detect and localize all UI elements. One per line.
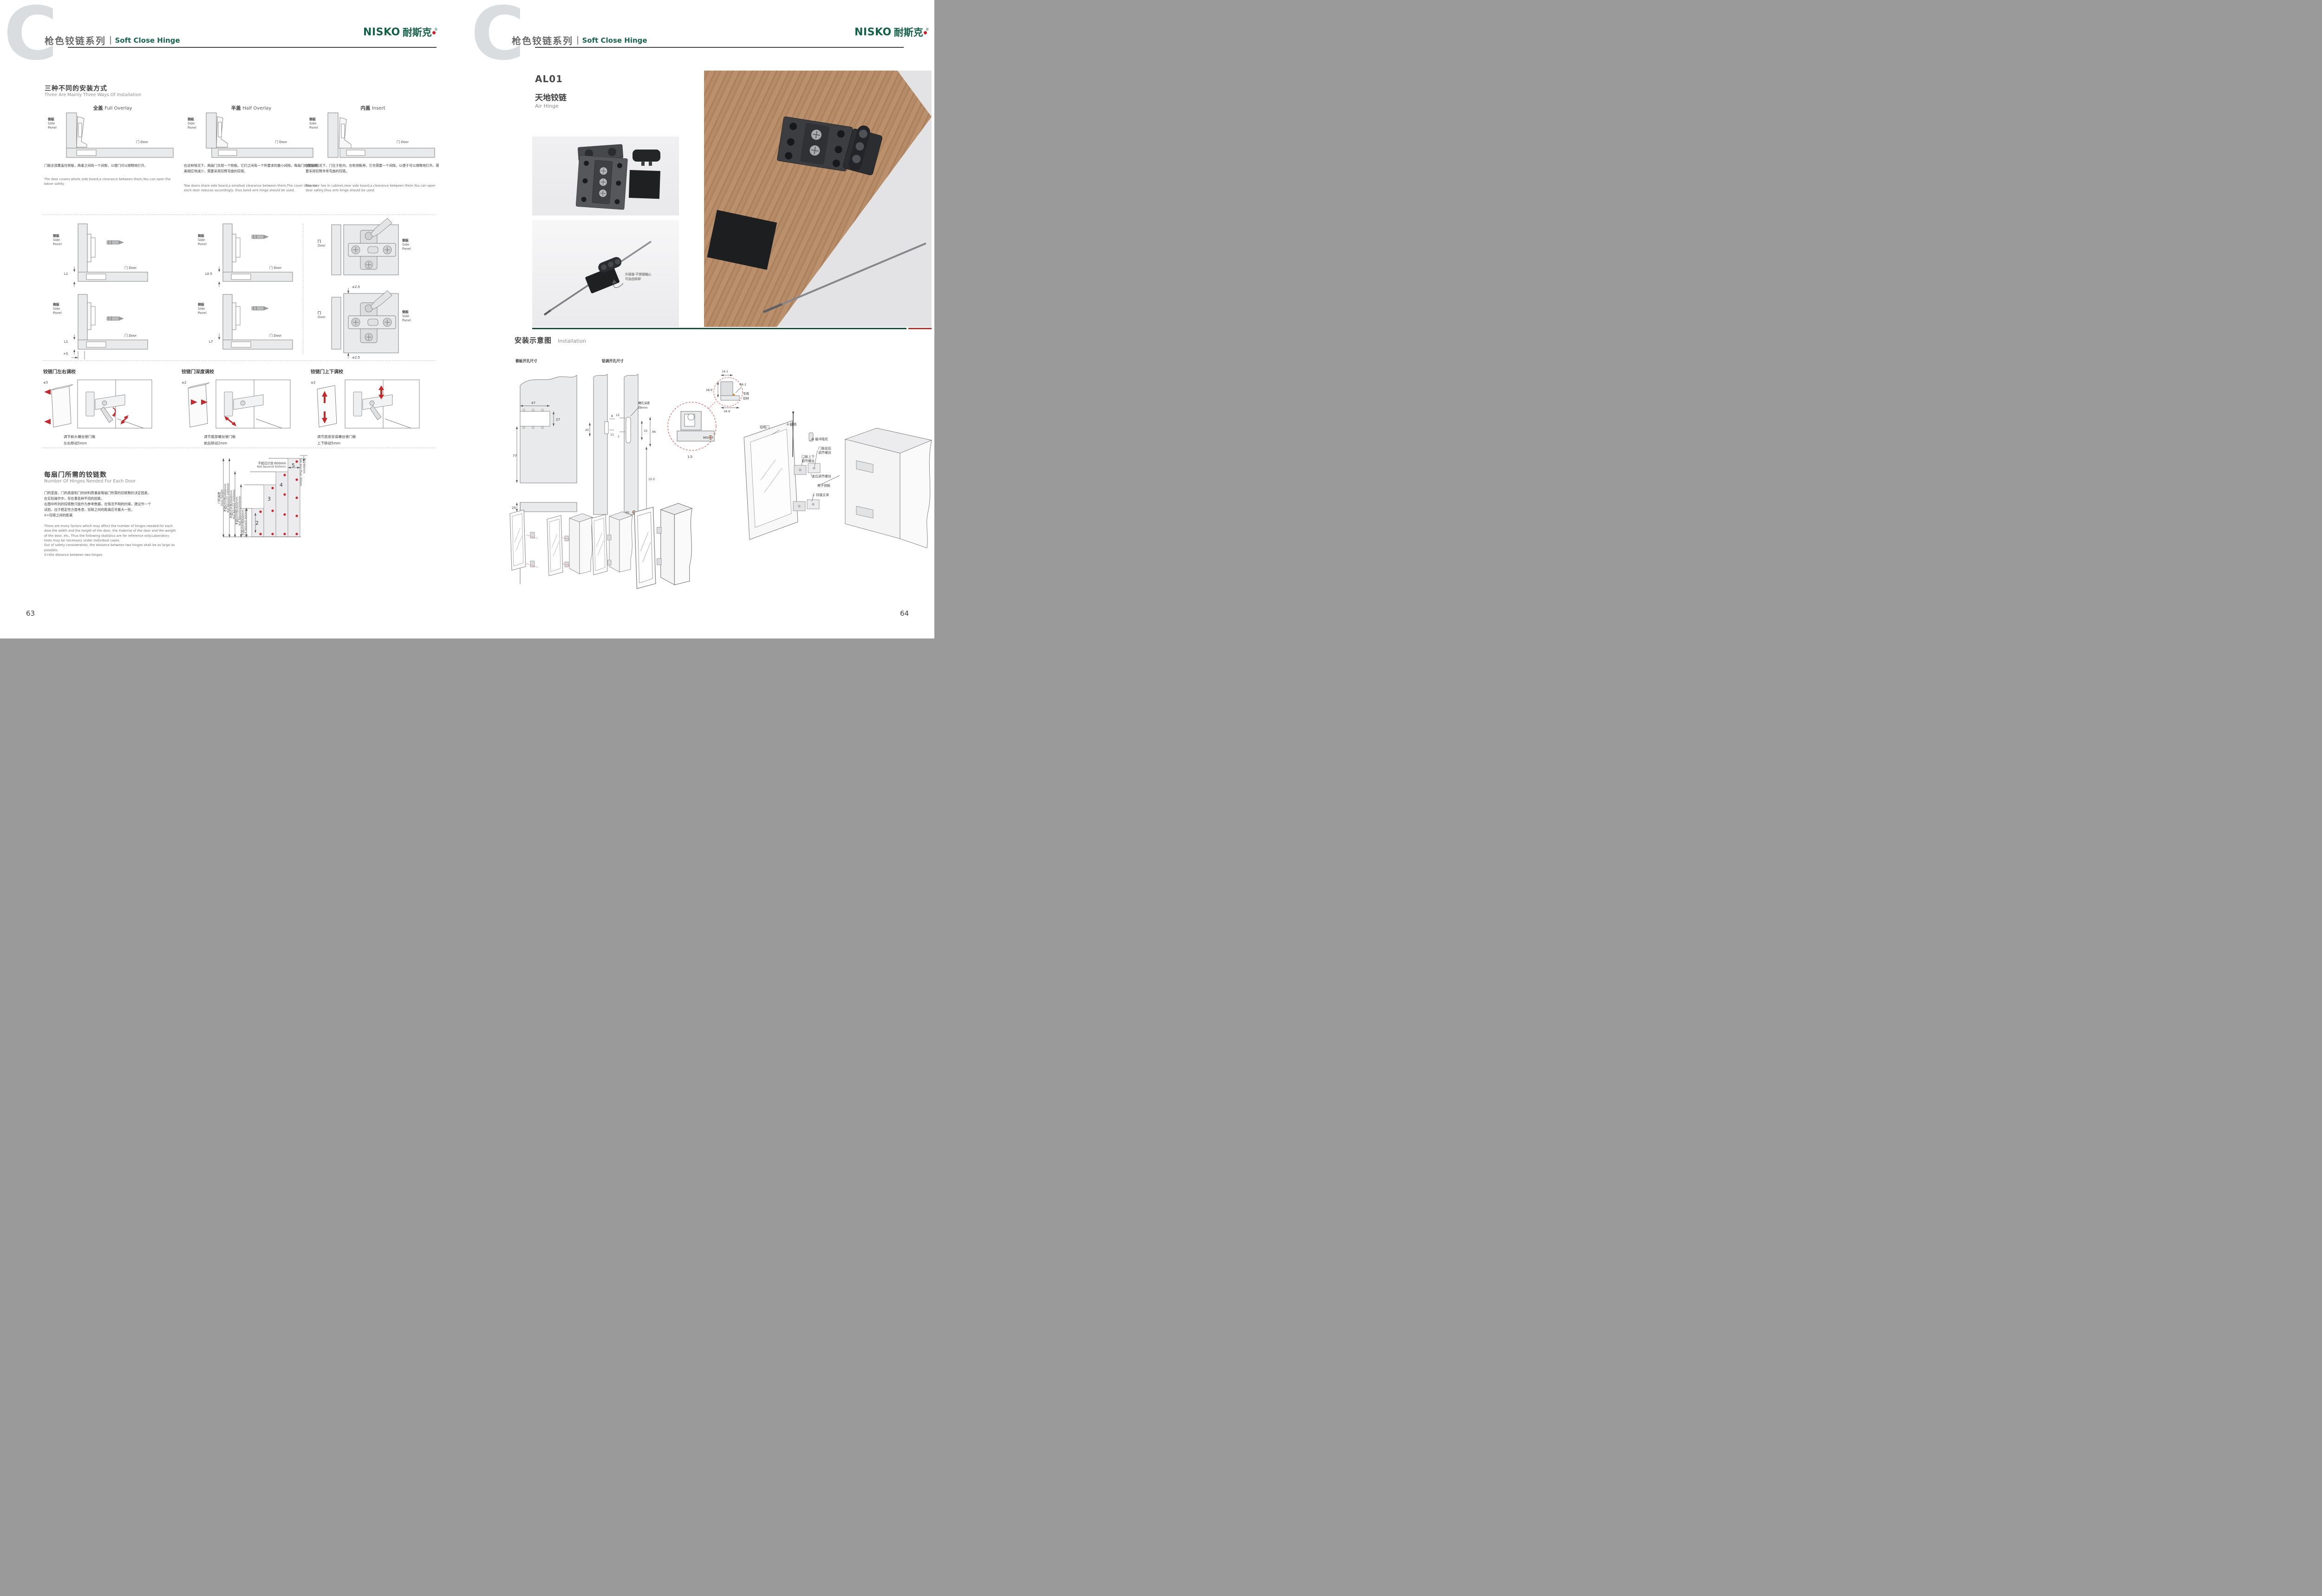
svg-text:1: 1 (618, 435, 620, 438)
door-label: 门 Door (269, 333, 281, 338)
adjust-title: 铰链门上下调校 (311, 368, 441, 375)
door-label: 门 Door (124, 333, 137, 338)
air-hinge-on-board (777, 112, 885, 176)
tolerance-top: ±2.5 (352, 285, 360, 289)
label-frame-door: 铝框门 (760, 425, 770, 430)
svg-text:槽孔深度: 槽孔深度 (638, 401, 650, 405)
clearance-diagram-L1: 侧板SidePanel 门 Door L1 (50, 222, 162, 291)
svg-text:M5: M5 (703, 436, 708, 440)
product-name-en: Air Hinge (535, 103, 559, 109)
installation-title: 安装示意图 Installation (515, 335, 586, 345)
clearance-diagram-L0.5: 侧板SidePanel 门 Door L0.5 (195, 222, 307, 291)
clearance-drawing (50, 222, 162, 291)
plate-diagram-2: 门Door 侧板SidePanel ±2.5 ±2.5 (318, 287, 434, 361)
bar-count-2: 2 (255, 520, 259, 526)
alu-drill-drawing: 8 20 11 12 1 33 46 15.5 M5 槽孔深度 18mm (586, 367, 660, 522)
dim-label: L7 (209, 340, 213, 344)
alu-drill-title: 铝调开孔尺寸 (602, 358, 624, 364)
svg-text:15.5: 15.5 (648, 478, 655, 481)
adjust-caption: 调节尾部螺丝使门板 前后移动2mm (204, 434, 235, 446)
product-code: AL01 (535, 73, 563, 85)
side-panel-label: 侧板SidePanel (198, 234, 207, 247)
label-ud-screw: 门板上下 调节螺丝 (802, 455, 815, 463)
logo-wordmark: NISKO (854, 27, 892, 38)
series-title-en: Soft Close Hinge (115, 36, 180, 45)
bar-count-4: 4 (280, 482, 283, 488)
photo-parts-drawing (532, 137, 679, 215)
row-label-900: 不超过计划900mmNot bevond 900mm (241, 508, 248, 537)
adjust-depth: 铰链门深度调校 ±2 调节尾部螺丝使门板 前后移动2mm (182, 368, 312, 375)
hinge-count-desc-cn: 门的宽度，门的高度和门的材料质量是每扇门所需的铰链数的决定因素。 在实际操作中，… (44, 490, 197, 518)
method-desc-en: Tow doors share side board,a smallest cl… (184, 183, 318, 193)
header-rule-right (535, 47, 904, 48)
svg-text:47: 47 (531, 401, 535, 405)
clearance-diagram-L7: 侧板SidePanel 门 Door L7 (195, 293, 307, 361)
product-photo-parts (532, 137, 679, 215)
side-panel-label: 侧板SidePanel (402, 239, 411, 251)
clearance-diagram-L1-plus5: 侧板SidePanel 门 Door L1 +5 (50, 293, 162, 361)
method-desc-cn: 门板全部覆盖住侧板，两者之间有一个间隙，以便门可以顺畅地打开。 (44, 163, 180, 169)
series-title-cn: 枪色铰链系列 (512, 33, 573, 47)
method-half-overlay: 半盖 Half Overlay 侧板SidePanel 门 Door 在这种情况… (184, 104, 319, 111)
catalog-spread: C 枪色铰链系列 Soft Close Hinge NISKO 耐斯克 ® 三种… (0, 0, 934, 638)
plate-drawing (318, 287, 434, 361)
label-hinge-body: C 铰链主体 (813, 493, 829, 497)
svg-text:18mm: 18mm (638, 406, 647, 410)
logo-red-dot-icon (432, 31, 436, 34)
black-pad (629, 170, 660, 199)
label-damper: B 缓冲阻尼 (812, 437, 828, 442)
plate-drawing (318, 222, 434, 279)
top-label-600: 不超过计划 600mmNot bevond 600mm (241, 462, 286, 469)
page-number-left: 63 (26, 609, 35, 618)
logo-wordmark: NISKO (363, 27, 400, 38)
svg-text:46: 46 (652, 430, 656, 434)
side-panel-label: 侧板SidePanel (402, 310, 411, 323)
brand-logo-right: NISKO 耐斯克 ® (854, 27, 929, 38)
header-divider (577, 36, 578, 45)
hinge-count-chart: 2 3 4 5 门的高度Door height 不超过计划2400mmNot b… (222, 455, 324, 553)
method-desc-en: The door covers whole side board,a clear… (44, 177, 180, 187)
svg-text:20: 20 (585, 429, 589, 432)
method-insert: 内盖 Insert 侧板SidePanel 门 Door 在这种情况下，门位于柜… (306, 104, 440, 111)
full-overlay-diagram (44, 112, 181, 159)
hinge-hardware-upper (794, 463, 820, 475)
door-label: 门 Door (275, 140, 287, 144)
header-divider (110, 36, 111, 45)
clearance-drawing (50, 293, 162, 361)
logo-cn: 耐斯克 (894, 27, 923, 38)
door-label-block: 门Door (318, 240, 326, 248)
adjust-title: 铰链门左右调校 (43, 368, 173, 375)
upgrade-note: 升级版·不锈钢轴心 可自由拆卸 (625, 272, 652, 281)
assembly-sequence-drawing (510, 502, 710, 595)
product-photo-scene (704, 71, 932, 327)
header-rule-left (68, 47, 437, 48)
black-pad (707, 210, 777, 270)
hinge-cover (633, 150, 660, 166)
label-cover-screw: 盖位调节螺丝 (812, 475, 831, 479)
door-label: 门 Door (397, 140, 409, 144)
svg-text:Φ6.2: Φ6.2 (739, 383, 746, 386)
logo-cn: 耐斯克 (403, 27, 432, 38)
label-cabinet-side: 柜子侧板 (817, 484, 830, 488)
screw-icon (252, 235, 268, 239)
hinge-hardware-lower (793, 500, 819, 511)
method-desc-cn: 在这种情况下，两扇门共用一个侧板。它们之间有一个所要求的最小间隙。每扇门的覆盖距… (184, 163, 318, 174)
adjust-drawing (311, 379, 427, 431)
door-label: 门 Door (124, 266, 137, 270)
page-header-right: 枪色铰链系列 Soft Close Hinge (512, 33, 647, 47)
door-label-block: 门Door (318, 311, 326, 319)
side-panel-label: 侧板SidePanel (48, 117, 57, 130)
vertical-separator (303, 224, 303, 354)
brand-logo-left: NISKO 耐斯克 ® (363, 27, 438, 38)
adjust-caption: 调节底座安装螺丝使门板 上下移动5mm (317, 434, 356, 446)
svg-text:专用: 专用 (743, 391, 749, 396)
methods-title-en: Three Are Mainly Three Ways Of Installat… (45, 92, 141, 98)
adjust-left-right: 铰链门左右调校 ±5 调节前头螺丝使门板 左右移动5mm (43, 368, 173, 375)
svg-text:铝材: 铝材 (743, 396, 749, 400)
side-panel-label: 侧板SidePanel (53, 234, 62, 247)
side-panel-label: 侧板SidePanel (188, 117, 196, 130)
side-panel-label: 侧板SidePanel (198, 303, 207, 315)
dim-label: L0.5 (205, 272, 212, 276)
screw-icon (107, 317, 124, 320)
hinge-base-plate (576, 155, 627, 209)
method-title: 半盖 Half Overlay (184, 104, 319, 111)
methods-title-cn: 三种不同的安装方式 (45, 84, 107, 93)
side-panel-label: 侧板SidePanel (53, 303, 62, 315)
side-panel-label: 侧板SidePanel (309, 117, 318, 130)
door-label: 门 Door (136, 140, 148, 144)
bar-count-5: 5 (292, 463, 295, 469)
svg-text:33: 33 (644, 430, 647, 433)
bar-count-3: 3 (267, 496, 271, 502)
product-name-cn: 天地铰链 (535, 91, 567, 103)
svg-text:77: 77 (513, 454, 517, 458)
method-desc-en: Tow door lies in cabinet,near side board… (306, 183, 439, 193)
label-pin: A 插销 (787, 423, 796, 427)
plate-diagram-1: 门Door 侧板SidePanel (318, 222, 434, 279)
separator-1 (43, 215, 435, 215)
dim-extra-label: +5 (63, 352, 68, 356)
svg-text:12: 12 (616, 414, 620, 417)
clearance-drawing (195, 222, 307, 291)
method-desc-cn: 在这种情况下，门位于柜内，在柜侧板旁。它也需要一个间隙。以便于可以顺畅地打开。需… (306, 163, 439, 174)
page-header-left: 枪色铰链系列 Soft Close Hinge (45, 33, 180, 47)
method-title: 全盖 Full Overlay (44, 104, 181, 111)
svg-text:8: 8 (611, 415, 613, 418)
hinge-count-title-en: Number Of Hinges Needed For Each Door (44, 479, 136, 484)
screw-icon (252, 306, 268, 310)
separator-3 (43, 448, 435, 448)
side-drill-title: 侧板开孔尺寸 (515, 358, 537, 364)
dim-label: L1 (64, 272, 68, 276)
series-title-cn: 枪色铰链系列 (45, 33, 106, 47)
section-divider-red (908, 328, 932, 329)
half-overlay-diagram (184, 112, 319, 159)
adjust-caption: 调节前头螺丝使门板 左右移动5mm (64, 434, 95, 446)
svg-text:27: 27 (556, 418, 560, 422)
separator-2 (43, 360, 435, 361)
svg-text:14.1: 14.1 (722, 370, 728, 373)
photo-assembled-drawing (532, 220, 679, 327)
series-title-en: Soft Close Hinge (582, 36, 647, 45)
method-full-overlay: 全盖 Full Overlay 侧板SidePanel 门 Door 门板全部覆… (44, 104, 181, 111)
page-number-right: 64 (900, 609, 909, 618)
section-divider-green (532, 328, 907, 329)
label-fb-screw: 门板前后 调节螺丝 (818, 447, 831, 455)
exploded-drawing (724, 410, 934, 554)
tolerance-bottom: ±2.5 (352, 356, 360, 359)
clearance-drawing (195, 293, 307, 361)
adjust-drawing (182, 379, 298, 431)
svg-text:11: 11 (610, 433, 614, 436)
photo-scene-drawing (704, 71, 932, 327)
method-title: 内盖 Insert (306, 104, 440, 111)
insert-diagram (306, 112, 440, 159)
side-drill-drawing: 47 27 77 25 (515, 367, 584, 522)
dim-label: L1 (64, 340, 68, 344)
svg-text:28.9: 28.9 (706, 389, 712, 392)
hinge-count-desc-en: There are many factors which may affect … (44, 524, 197, 558)
right-label-90: 至少90mm Not less than 90mm (299, 458, 307, 486)
hinge-count-title-cn: 每扇门所需的铰链数 (44, 470, 107, 479)
door-label: 门 Door (269, 266, 281, 270)
screw-icon (107, 241, 124, 244)
logo-red-dot-icon (924, 31, 927, 34)
adjust-drawing (43, 379, 159, 431)
svg-text:1:5: 1:5 (687, 455, 692, 459)
adjust-up-down: 铰链门上下调校 ±2 调节底座安装螺丝使门板 上下移动5mm (311, 368, 441, 375)
adjust-title: 铰链门深度调校 (182, 368, 312, 375)
product-photo-assembled: 升级版·不锈钢轴心 可自由拆卸 (532, 220, 679, 327)
